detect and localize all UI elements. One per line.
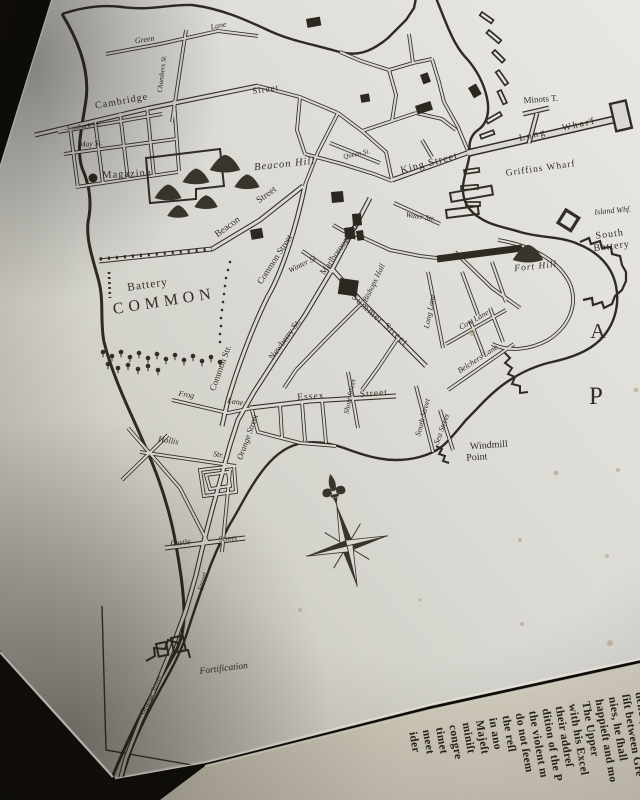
photo-vignette xyxy=(0,0,640,800)
map-photo-canvas: in his po that harmony and affec dence, … xyxy=(0,0,640,800)
photograph-of-map-page: in his po that harmony and affec dence, … xyxy=(0,0,640,800)
